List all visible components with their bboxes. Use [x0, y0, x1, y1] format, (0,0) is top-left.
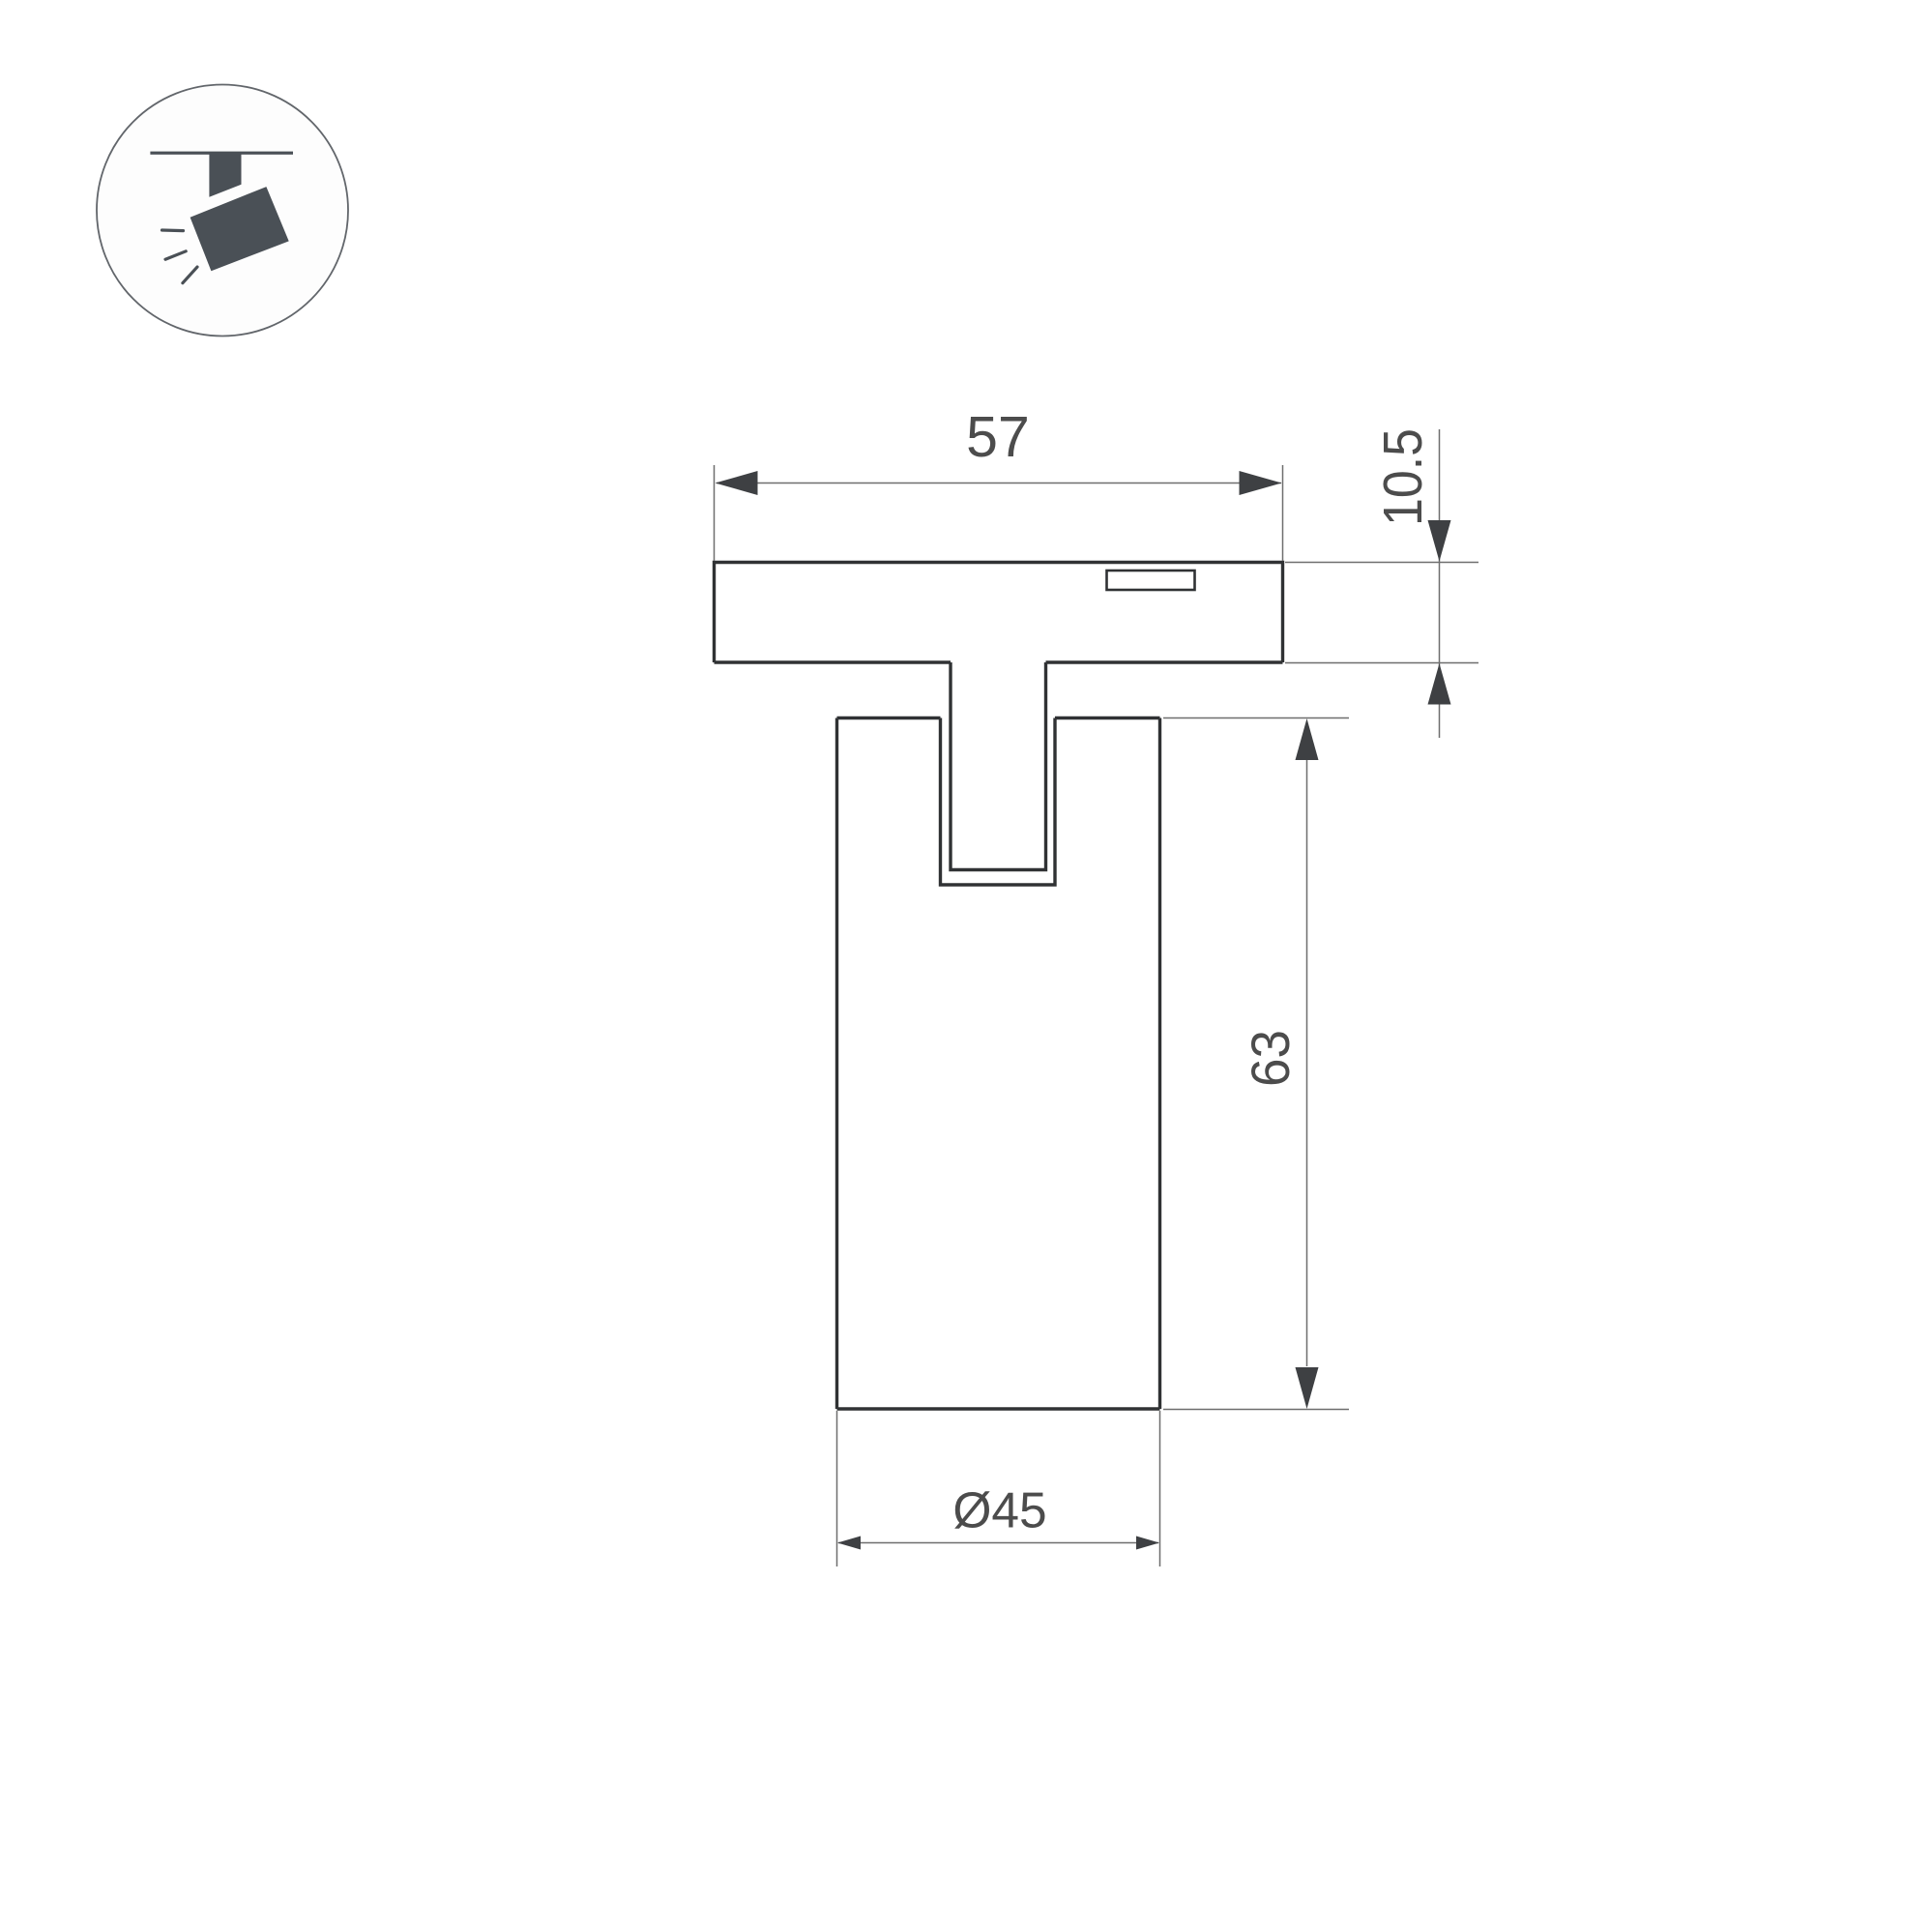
svg-text:57: 57 — [966, 405, 1030, 469]
svg-text:63: 63 — [1241, 1030, 1301, 1087]
svg-text:10.5: 10.5 — [1372, 428, 1434, 526]
svg-text:Ø45: Ø45 — [952, 1482, 1046, 1538]
